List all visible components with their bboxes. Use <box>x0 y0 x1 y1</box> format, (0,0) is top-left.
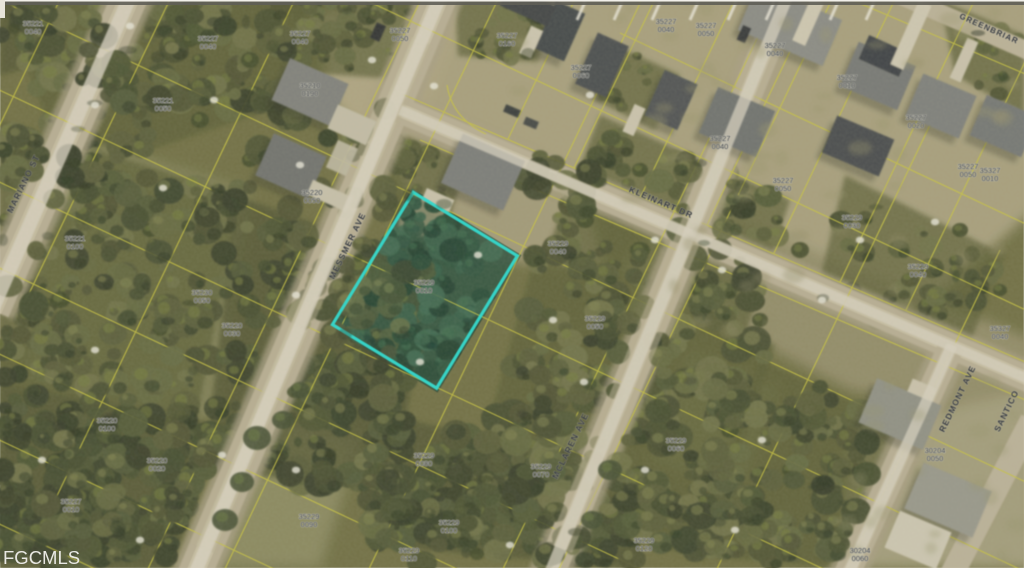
svg-text:FGCMLS: FGCMLS <box>3 547 80 568</box>
